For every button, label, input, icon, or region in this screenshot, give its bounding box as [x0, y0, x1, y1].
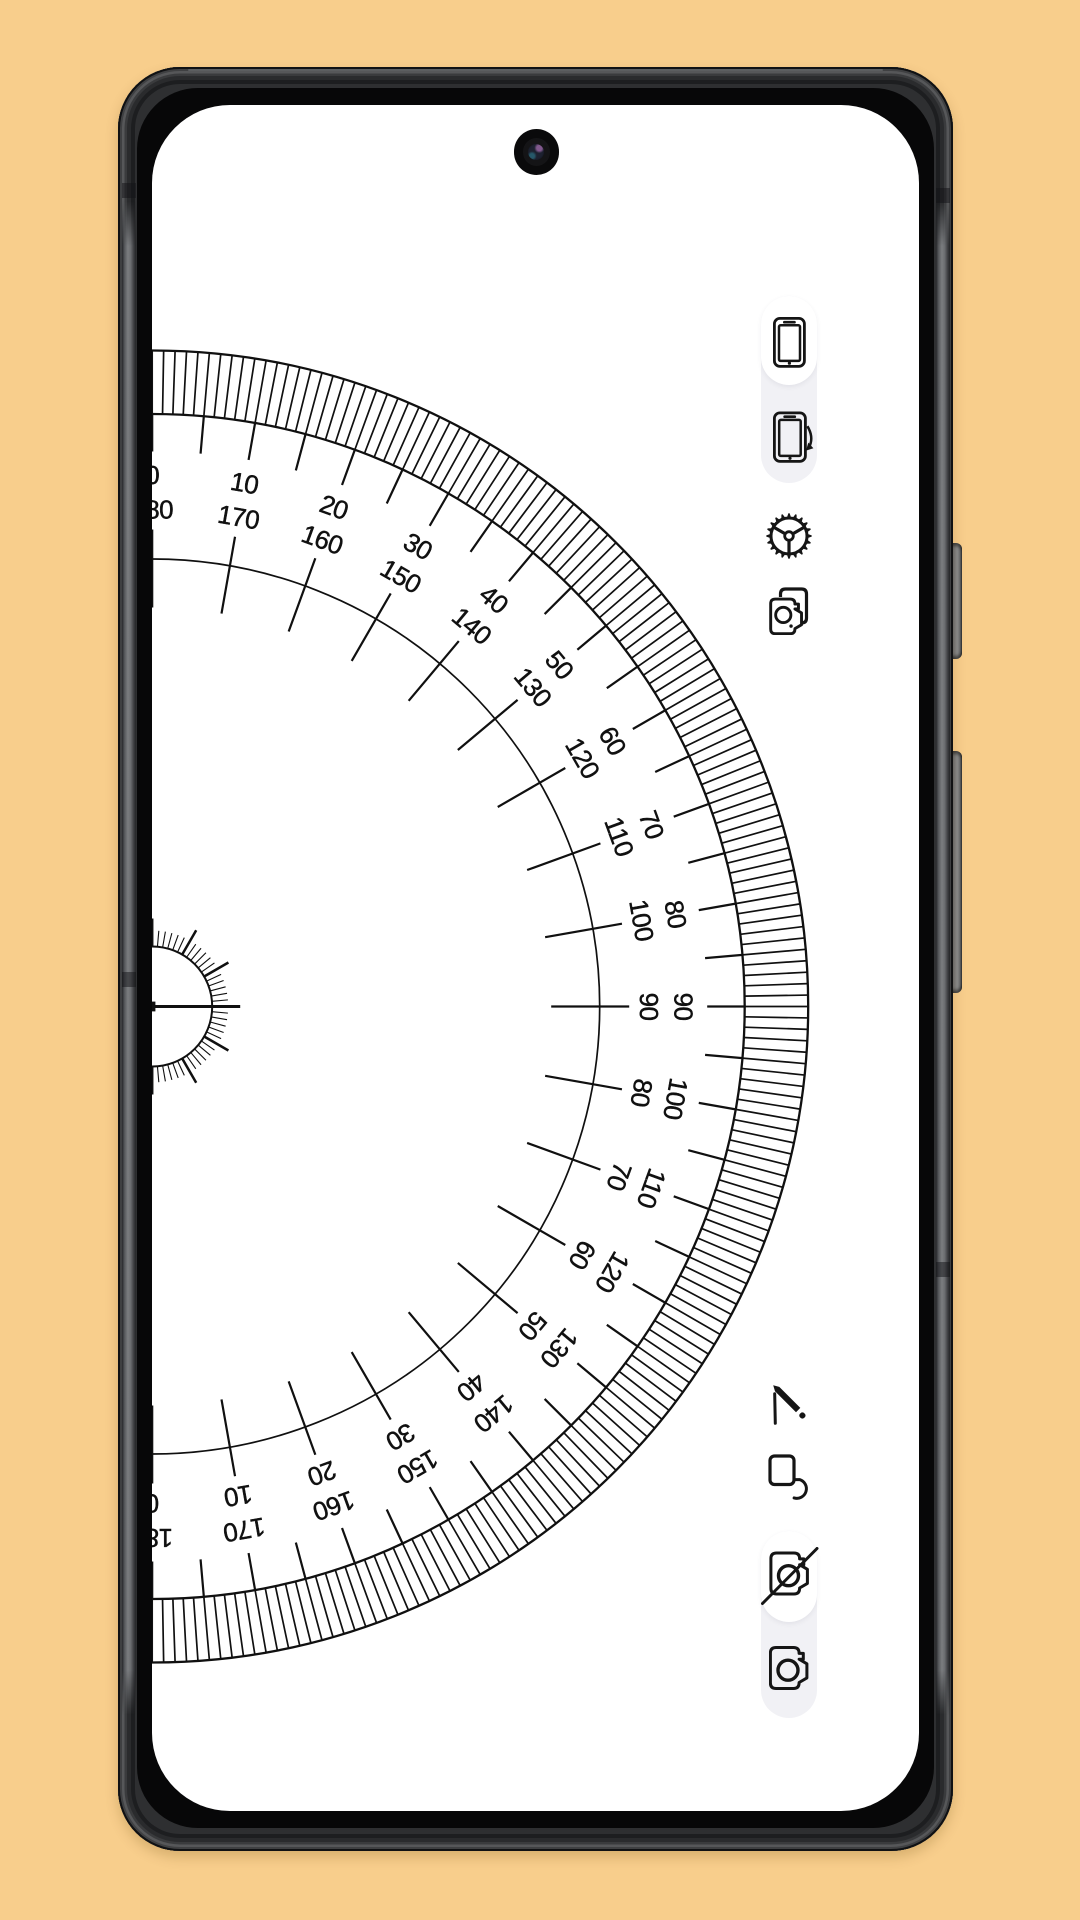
svg-text:70: 70 [633, 807, 671, 843]
svg-text:60: 60 [563, 1236, 603, 1275]
svg-text:10: 10 [229, 466, 262, 500]
svg-text:90: 90 [634, 993, 664, 1021]
svg-text:100: 100 [624, 898, 661, 944]
svg-text:170: 170 [216, 499, 262, 536]
svg-text:0: 0 [152, 460, 159, 490]
svg-text:90: 90 [669, 993, 699, 1021]
svg-text:80: 80 [625, 1077, 659, 1110]
svg-text:100: 100 [657, 1076, 694, 1122]
svg-text:20: 20 [316, 489, 352, 527]
svg-text:0: 0 [152, 1489, 159, 1519]
svg-text:10: 10 [222, 1479, 255, 1513]
svg-text:30: 30 [381, 1417, 420, 1457]
svg-text:170: 170 [222, 1512, 268, 1549]
svg-text:180: 180 [152, 1523, 173, 1553]
svg-text:180: 180 [152, 495, 173, 525]
svg-text:110: 110 [599, 813, 641, 861]
svg-text:20: 20 [304, 1455, 340, 1493]
svg-text:70: 70 [601, 1159, 639, 1195]
svg-text:80: 80 [659, 898, 693, 931]
